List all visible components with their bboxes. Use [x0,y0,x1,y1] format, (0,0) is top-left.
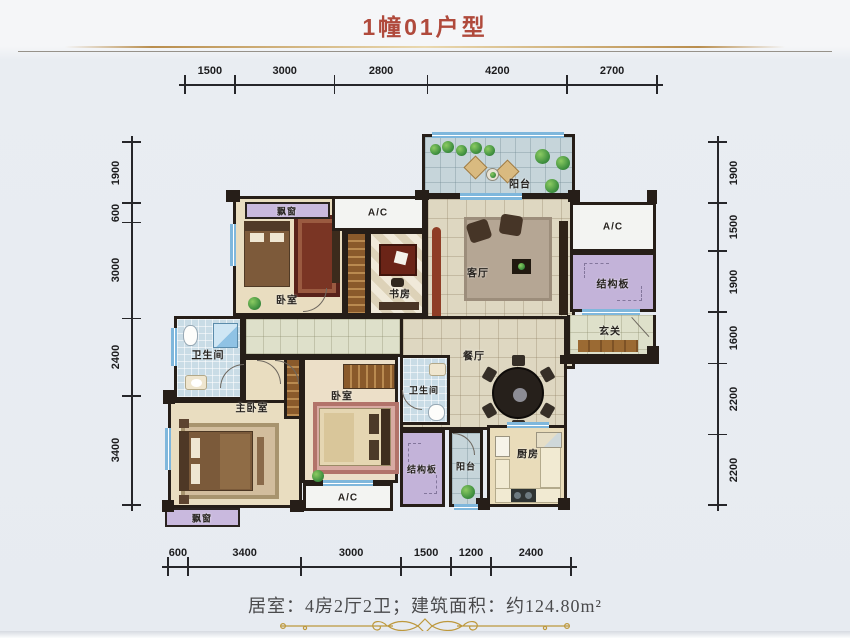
dimension-segment: 1500 [401,540,451,584]
window-kitchen [507,422,549,428]
nightstand [179,495,189,504]
plant-icon [430,144,441,155]
plant-icon [535,149,550,164]
dimension-value: 2400 [110,345,122,369]
balcony-table [486,168,499,181]
dimension-value: 3000 [301,547,401,559]
room-label-dining: 餐厅 [463,348,485,363]
plant-icon [461,485,475,499]
dimension-value: 3400 [188,547,301,559]
room-label-ac-top-right: A/C [603,222,623,233]
room-label-study: 书房 [389,286,411,301]
room-label-bay-bottom: 飘窗 [192,512,212,525]
bedroom2-bed [319,408,391,466]
dimension-line-top: 15003000280042002700 [185,58,657,102]
dimension-segment: 600 [168,540,188,584]
balcony-chair [463,155,487,179]
dimension-value: 1500 [185,65,235,77]
bed-bench [257,437,264,485]
dimension-value: 2200 [728,457,740,481]
floorplan-page: 1幢01户型 15003000280042002700 600340030001… [0,0,850,638]
bathroom-sink [185,375,207,390]
room-master [168,400,302,508]
room-label-slab-bottom: 结构板 [407,463,437,476]
dimension-segment: 3000 [235,58,335,102]
dimension-value: 2200 [728,387,740,411]
window-bedroom1 [230,224,236,266]
room-kitchen [487,425,567,507]
dimension-value: 1900 [728,269,740,293]
toilet [428,404,445,421]
plant-icon [442,141,454,153]
room-label-kitchen: 厨房 [517,446,539,461]
balcony-sliding-door [460,193,522,200]
dimension-segment: 3000 [301,540,401,584]
dining-chair [539,366,555,383]
room-label-slab-right: 结构板 [597,276,630,291]
dimension-segment: 3400 [105,396,161,505]
room-study [368,231,425,316]
stove [511,489,536,502]
dimension-segment: 1900 [105,142,161,203]
room-balcony-top [422,134,575,196]
dimension-value: 3000 [235,65,335,77]
room-label-bath1: 卫生间 [192,347,225,362]
dimension-segment: 3400 [188,540,301,584]
room-label-bedroom2: 卧室 [331,388,353,403]
window-bedroom2 [323,480,373,486]
window-slab-right [582,309,640,315]
dimension-value: 1200 [451,547,491,559]
coffee-table [512,259,531,274]
dimension-value: 2700 [567,65,657,77]
room-bedroom2 [302,357,398,483]
bedroom1-cabinet [332,225,340,283]
desk [379,244,417,276]
plant-icon [456,145,467,156]
dining-chair [539,402,555,419]
thin-rule [18,51,832,52]
window-balcony-bottom [454,504,478,510]
floor-plan: 阳台 客厅 卧室 飘窗 [160,128,705,535]
dimension-value: 3000 [110,258,122,282]
corridor [243,316,403,357]
wardrobe-bedroom2 [343,364,395,389]
dimension-line-bottom: 60034003000150012002400 [168,540,571,584]
dimension-segment: 600 [105,203,161,222]
dimension-value: 4200 [428,65,568,77]
wardrobe-bedroom1 [345,231,368,316]
dimension-value: 1600 [728,326,740,350]
dimension-segment: 3000 [105,222,161,318]
dimension-value: 1500 [401,547,451,559]
dimension-value: 2800 [335,65,428,77]
plant-icon [484,145,495,156]
window-master [165,428,171,470]
dimension-segment: 2400 [491,540,571,584]
kitchen-sink [536,432,562,448]
plant-icon [545,179,559,193]
room-label-ac-top-center: A/C [368,208,388,219]
armchair [499,213,524,236]
study-cabinet [379,302,419,310]
bathroom2-sink [429,363,446,376]
corner-shower [213,323,238,348]
dimension-segment: 2400 [105,319,161,396]
dimension-segment: 4200 [428,58,568,102]
page-title: 1幢01户型 [0,8,850,42]
master-bed [179,431,253,491]
room-label-living: 客厅 [467,265,489,280]
dimension-value: 1900 [728,160,740,184]
dimension-value: 600 [168,547,188,559]
room-label-master: 主卧室 [236,400,269,415]
dining-table [492,367,544,419]
bottom-edge [0,631,850,638]
dimension-value: 3400 [110,438,122,462]
toilet [183,325,198,346]
dimension-value: 1900 [110,160,122,184]
dimension-segment: 1500 [185,58,235,102]
plant-icon [248,297,261,310]
plant-icon [470,142,482,154]
window-balcony-top [432,132,564,138]
dining-chair [512,355,525,366]
entrance-door-leaf [631,317,649,337]
window-bath1 [171,328,177,366]
gold-rule [65,46,785,48]
dimension-segment: 1200 [451,540,491,584]
fridge [495,436,510,457]
room-label-balcony-top: 阳台 [509,176,531,191]
room-label-balcony-bottom: 阳台 [456,460,476,473]
entry-wall [560,355,659,364]
shoe-cabinet [578,340,638,352]
console-table [432,227,441,325]
room-label-bay-top: 飘窗 [277,205,297,218]
tv-cabinet [559,221,568,315]
dimension-segment: 2700 [567,58,657,102]
room-label-ac-bottom: A/C [338,493,358,504]
dimension-value: 1500 [728,215,740,239]
dimension-value: 2400 [491,547,571,559]
room-label-bedroom1: 卧室 [276,292,298,307]
plant-icon [556,156,570,170]
bed [244,221,290,287]
dimension-line-left: 1900600300024003400 [105,142,161,505]
dimension-value: 600 [110,203,122,221]
kitchen-counter-right [540,444,561,488]
nightstand [179,419,189,428]
room-label-entry: 玄关 [599,323,621,338]
dimension-segment: 2800 [335,58,428,102]
